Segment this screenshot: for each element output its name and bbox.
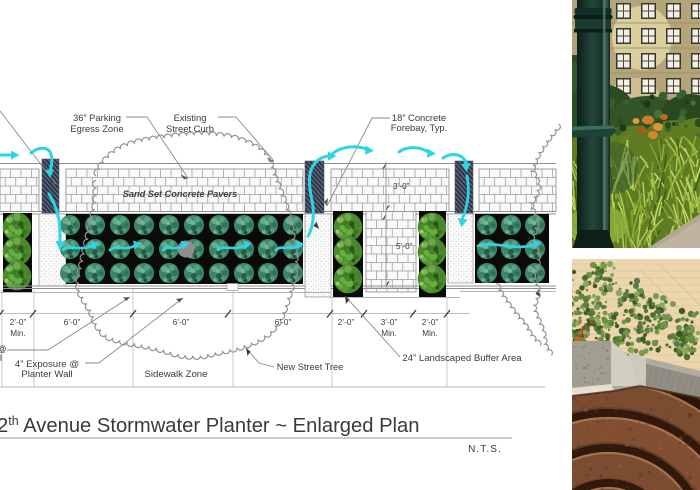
svg-text:Egress Zone: Egress Zone bbox=[70, 123, 123, 134]
svg-text:5’-0”: 5’-0” bbox=[396, 242, 413, 251]
svg-text:6’-0”: 6’-0” bbox=[275, 318, 292, 327]
svg-text:Planter Wall: Planter Wall bbox=[21, 369, 72, 380]
svg-text:N.T.S.: N.T.S. bbox=[468, 444, 502, 455]
svg-text:Sand Set Concrete Pavers: Sand Set Concrete Pavers bbox=[123, 189, 237, 199]
svg-text:36” Parking: 36” Parking bbox=[73, 112, 121, 123]
svg-text:2’-0”: 2’-0” bbox=[422, 318, 439, 327]
svg-text:6’-0”: 6’-0” bbox=[64, 318, 81, 327]
svg-text:Min.: Min. bbox=[381, 329, 396, 338]
svg-text:2’-0”: 2’-0” bbox=[338, 318, 355, 327]
svg-text:2th Avenue Stormwater Planter: 2th Avenue Stormwater Planter ~ Enlarged… bbox=[0, 414, 419, 437]
svg-text:2’-0”: 2’-0” bbox=[10, 318, 27, 327]
svg-text:Existing: Existing bbox=[174, 112, 207, 123]
svg-text:24” Landscaped Buffer Area: 24” Landscaped Buffer Area bbox=[402, 353, 522, 364]
svg-text:New Street Tree: New Street Tree bbox=[277, 362, 343, 372]
svg-text:Min.: Min. bbox=[10, 329, 25, 338]
svg-text:l: l bbox=[0, 353, 2, 363]
svg-text:Street Curb: Street Curb bbox=[166, 123, 214, 134]
svg-text:Sidewalk Zone: Sidewalk Zone bbox=[145, 369, 208, 380]
svg-text:3’-0”: 3’-0” bbox=[393, 182, 410, 191]
svg-text:6’-0”: 6’-0” bbox=[173, 318, 190, 327]
svg-text:3’-0”: 3’-0” bbox=[381, 318, 398, 327]
svg-text:Min.: Min. bbox=[422, 329, 437, 338]
svg-text:Forebay, Typ.: Forebay, Typ. bbox=[391, 122, 447, 133]
